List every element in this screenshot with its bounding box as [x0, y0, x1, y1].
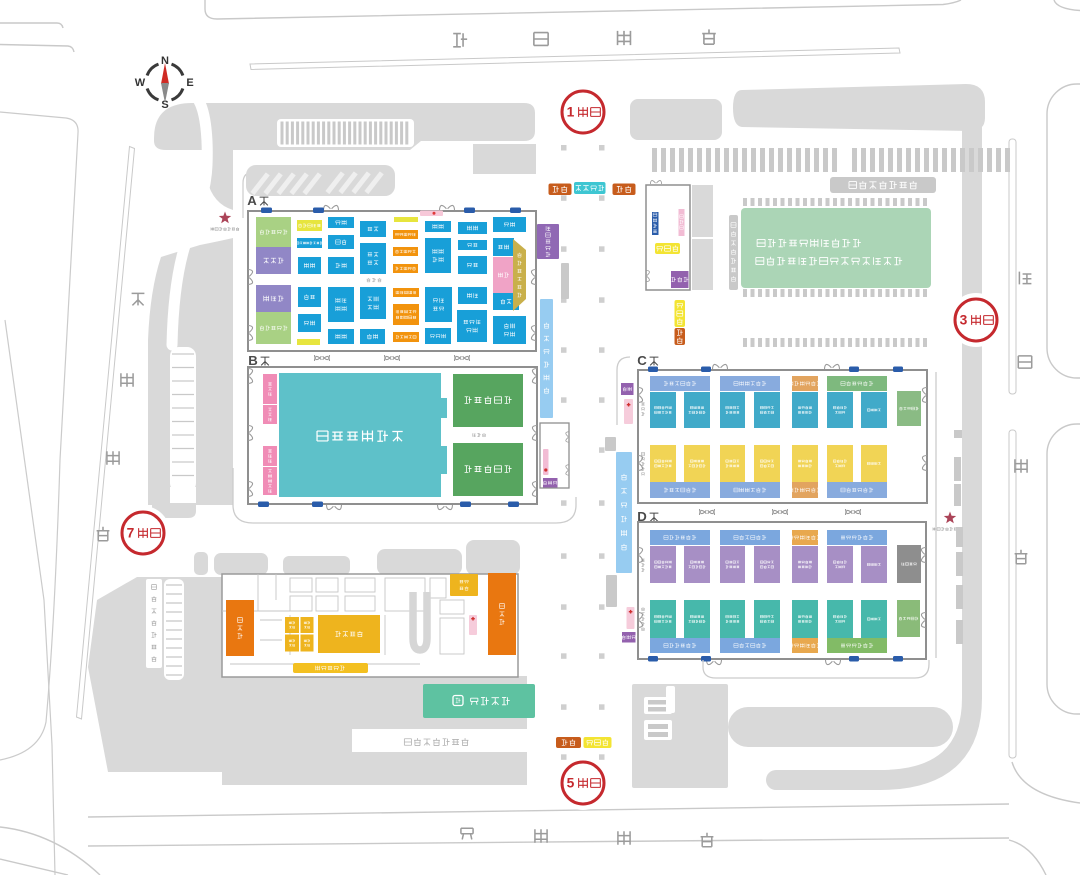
svg-text:C: C [637, 353, 647, 368]
svg-text:3: 3 [960, 312, 968, 327]
svg-text:W: W [135, 77, 146, 89]
svg-text:1: 1 [567, 104, 575, 119]
svg-text:E: E [186, 77, 193, 89]
svg-text:7: 7 [127, 525, 135, 540]
svg-text:A: A [247, 193, 257, 208]
svg-text:5: 5 [567, 775, 575, 790]
svg-text:B: B [248, 353, 258, 368]
